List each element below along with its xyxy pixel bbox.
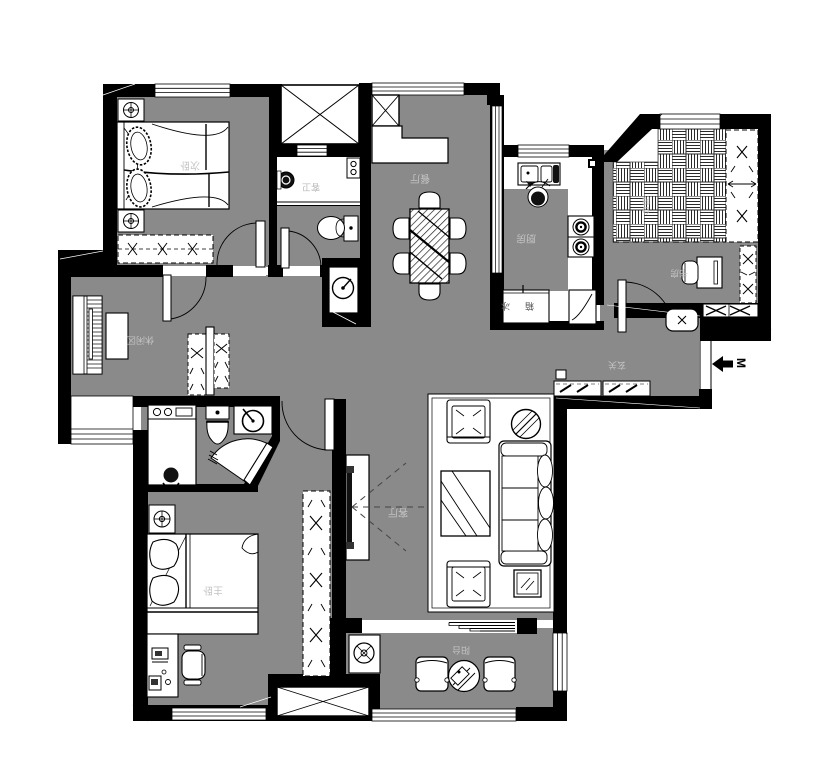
svg-text:台: 台 [642, 206, 650, 216]
svg-text:M: M [734, 358, 748, 368]
svg-text:阳台: 阳台 [452, 645, 470, 656]
svg-text:餐厅: 餐厅 [410, 172, 430, 185]
svg-text:阳: 阳 [642, 196, 650, 205]
svg-text:玄关: 玄关 [608, 360, 626, 371]
svg-text:次卧: 次卧 [180, 159, 200, 172]
svg-text:厨房: 厨房 [516, 232, 536, 245]
svg-text:主卧: 主卧 [203, 584, 223, 597]
svg-text:箱: 箱 [525, 301, 534, 312]
svg-text:书房: 书房 [670, 268, 688, 279]
svg-text:休闲区: 休闲区 [127, 335, 154, 346]
svg-text:冰: 冰 [501, 301, 510, 312]
svg-text:客卫: 客卫 [302, 182, 320, 193]
svg-text:客厅: 客厅 [388, 506, 408, 519]
